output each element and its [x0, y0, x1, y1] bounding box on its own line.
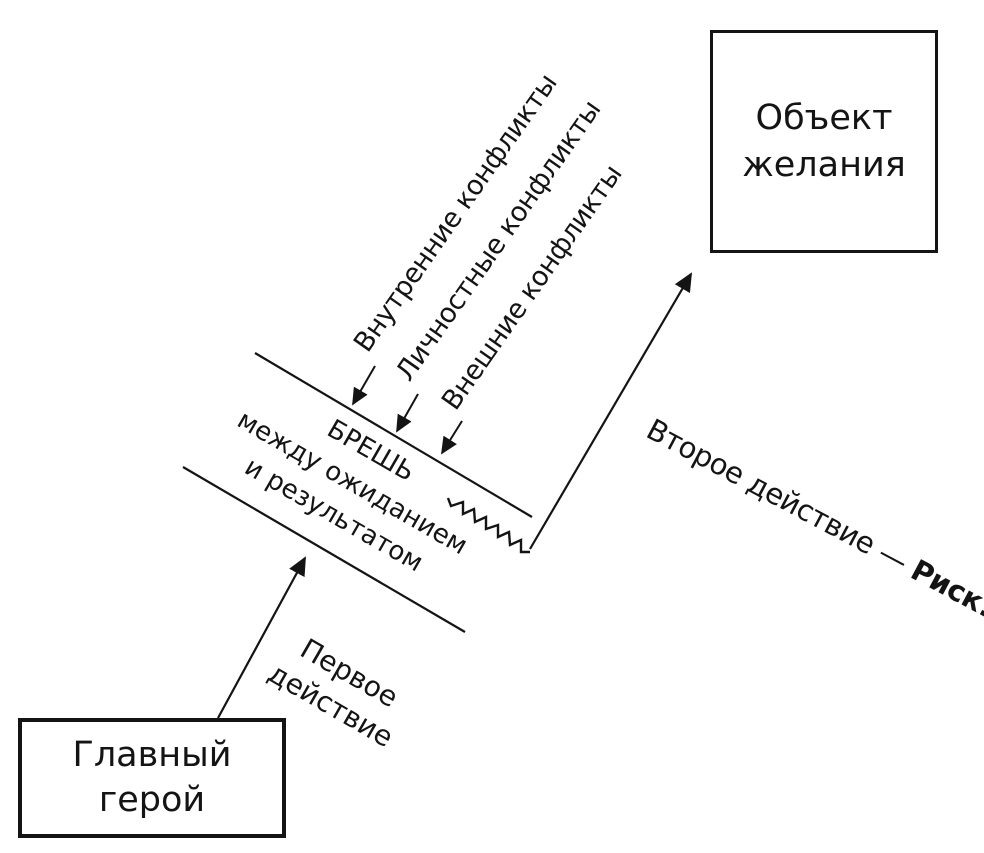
second-action-arrow	[530, 274, 691, 549]
story-structure-diagram: Объект желания Главный герой Внутренние …	[0, 0, 984, 853]
object-of-desire-label-line1: Объект	[756, 95, 893, 142]
main-hero-label-line2: герой	[99, 778, 205, 823]
object-of-desire-label-line2: желания	[742, 142, 906, 189]
conflict-arrow-internal	[353, 366, 375, 404]
object-of-desire-box: Объект желания	[710, 30, 938, 253]
conflict-arrow-personal	[397, 394, 418, 431]
main-hero-label-line1: Главный	[72, 733, 231, 778]
conflict-arrow-external	[442, 421, 462, 453]
main-hero-box: Главный герой	[18, 718, 286, 838]
